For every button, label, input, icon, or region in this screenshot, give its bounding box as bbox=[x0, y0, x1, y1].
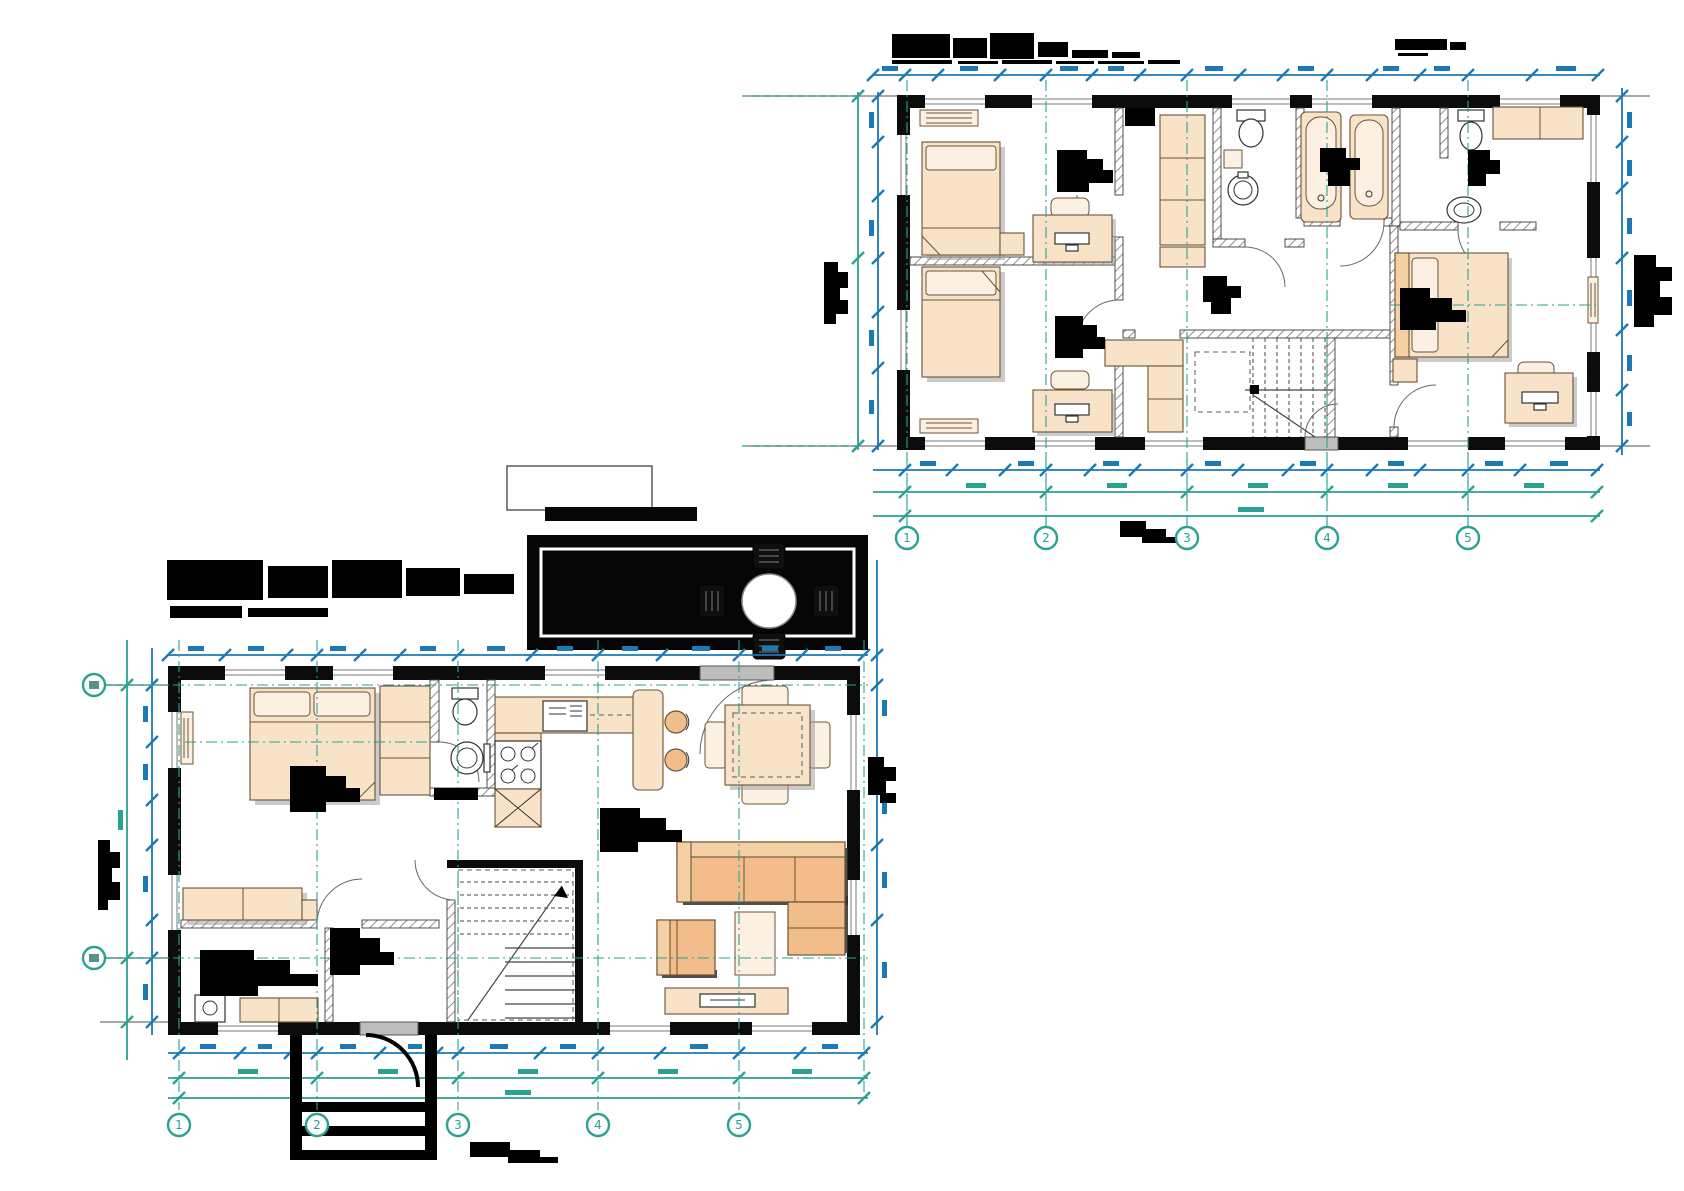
terrace-deck bbox=[507, 466, 868, 659]
bar-stool bbox=[665, 749, 689, 771]
washbasin bbox=[1447, 197, 1481, 223]
svg-text:1: 1 bbox=[903, 531, 911, 545]
wardrobe bbox=[380, 686, 430, 795]
window bbox=[897, 135, 910, 195]
desk-3 bbox=[1505, 362, 1577, 427]
hall-wardrobe bbox=[1160, 115, 1205, 267]
grid-bubble: 5 bbox=[1457, 527, 1479, 549]
fridge-icon bbox=[543, 701, 587, 731]
washing-machine bbox=[195, 995, 225, 1022]
bath-shelf bbox=[1224, 150, 1242, 168]
side-label-blob-left bbox=[824, 262, 848, 324]
window bbox=[925, 95, 985, 108]
terrace-steps bbox=[507, 466, 652, 510]
dimension-chains-bottom bbox=[873, 461, 1603, 543]
scale-note-blob bbox=[1120, 521, 1182, 543]
window bbox=[1408, 437, 1468, 450]
window bbox=[333, 666, 393, 680]
dimension-chain-right bbox=[868, 560, 896, 1035]
staircase bbox=[458, 870, 575, 1020]
tv-stand bbox=[665, 988, 788, 1014]
svg-text:3: 3 bbox=[1183, 531, 1191, 545]
side-label-blob-right bbox=[1634, 255, 1672, 327]
dining-set bbox=[705, 686, 830, 804]
window bbox=[1232, 95, 1290, 108]
storage-cabinet bbox=[1493, 107, 1583, 139]
kitchen-sink-icon bbox=[495, 789, 541, 827]
dimension-chain-left bbox=[83, 640, 168, 1060]
armchair bbox=[657, 920, 717, 978]
svg-text:3: 3 bbox=[454, 1118, 462, 1132]
first-floor-plan: 1 2 3 4 5 bbox=[83, 466, 896, 1163]
radiator bbox=[920, 110, 978, 126]
entry-door-threshold bbox=[360, 1022, 418, 1035]
grid-bubble: 1 bbox=[896, 527, 918, 549]
window bbox=[225, 666, 285, 680]
svg-text:4: 4 bbox=[1323, 531, 1331, 545]
grid-bubble: 2 bbox=[1035, 527, 1057, 549]
bedroom-bench bbox=[183, 888, 317, 925]
window bbox=[1312, 95, 1372, 108]
bottom-note-blob bbox=[470, 1142, 558, 1163]
toilet bbox=[1237, 110, 1265, 147]
floor-plan-drawing: 1 2 3 4 5 bbox=[0, 0, 1684, 1191]
plan-title-blob bbox=[167, 560, 514, 618]
dimension-chain-right bbox=[1600, 88, 1672, 455]
stove-icon bbox=[495, 741, 541, 789]
entry-closet bbox=[240, 998, 318, 1022]
grid-bubble: 3 bbox=[1176, 527, 1198, 549]
window bbox=[847, 880, 860, 935]
radiator bbox=[920, 419, 978, 433]
plan-title-blob bbox=[892, 33, 1180, 64]
window bbox=[218, 1022, 278, 1035]
svg-text:5: 5 bbox=[735, 1118, 743, 1132]
window bbox=[1032, 95, 1092, 108]
window bbox=[1587, 392, 1600, 436]
entry-door-swing bbox=[366, 1035, 418, 1087]
second-floor-plan: 1 2 3 4 5 bbox=[742, 33, 1672, 549]
window bbox=[1587, 115, 1600, 182]
grid-bubble: 1 bbox=[168, 1114, 190, 1136]
grid-bubble: 5 bbox=[728, 1114, 750, 1136]
grid-bubble: 2 bbox=[306, 1114, 328, 1136]
grid-bubble: 3 bbox=[447, 1114, 469, 1136]
toilet bbox=[1458, 110, 1484, 150]
window bbox=[1145, 437, 1203, 450]
svg-text:4: 4 bbox=[594, 1118, 602, 1132]
svg-text:2: 2 bbox=[313, 1118, 321, 1132]
svg-text:2: 2 bbox=[1042, 531, 1050, 545]
single-bed-2 bbox=[922, 267, 1005, 382]
window bbox=[1505, 437, 1565, 450]
dimension-chains-bottom bbox=[168, 1044, 870, 1163]
window bbox=[847, 715, 860, 790]
grid-bubble: 4 bbox=[1316, 527, 1338, 549]
window bbox=[752, 1022, 812, 1035]
window bbox=[925, 437, 985, 450]
round-table bbox=[742, 574, 796, 628]
side-label-blob-left bbox=[98, 840, 120, 910]
grid-bubbles: 1 2 3 4 5 bbox=[168, 1114, 750, 1136]
side-label-blob-right bbox=[868, 757, 896, 803]
svg-text:1: 1 bbox=[175, 1118, 183, 1132]
grid-bubble: 4 bbox=[587, 1114, 609, 1136]
window bbox=[610, 1022, 670, 1035]
svg-text:5: 5 bbox=[1464, 531, 1472, 545]
window bbox=[1500, 95, 1560, 108]
drawing-canvas: 1 2 3 4 5 bbox=[0, 0, 1684, 1191]
radiator bbox=[1588, 277, 1598, 323]
single-bed-1 bbox=[922, 142, 1005, 260]
washbasin bbox=[451, 742, 490, 774]
radiator bbox=[181, 712, 193, 764]
washbasin bbox=[1228, 172, 1258, 205]
window bbox=[1035, 437, 1095, 450]
dimension-chain-left bbox=[742, 90, 897, 452]
window bbox=[545, 666, 605, 680]
bar-stool bbox=[665, 711, 689, 733]
kitchen-counter bbox=[495, 697, 635, 827]
entry-door-threshold bbox=[1305, 437, 1338, 450]
dimension-chain-top bbox=[867, 66, 1604, 81]
ottoman bbox=[735, 912, 775, 975]
sheet-note-blob bbox=[1395, 39, 1466, 56]
toilet bbox=[452, 688, 478, 725]
window bbox=[897, 310, 910, 370]
night-table bbox=[1000, 233, 1024, 255]
bar-counter bbox=[633, 690, 689, 790]
night-table bbox=[1393, 359, 1417, 382]
staircase bbox=[1195, 338, 1333, 437]
